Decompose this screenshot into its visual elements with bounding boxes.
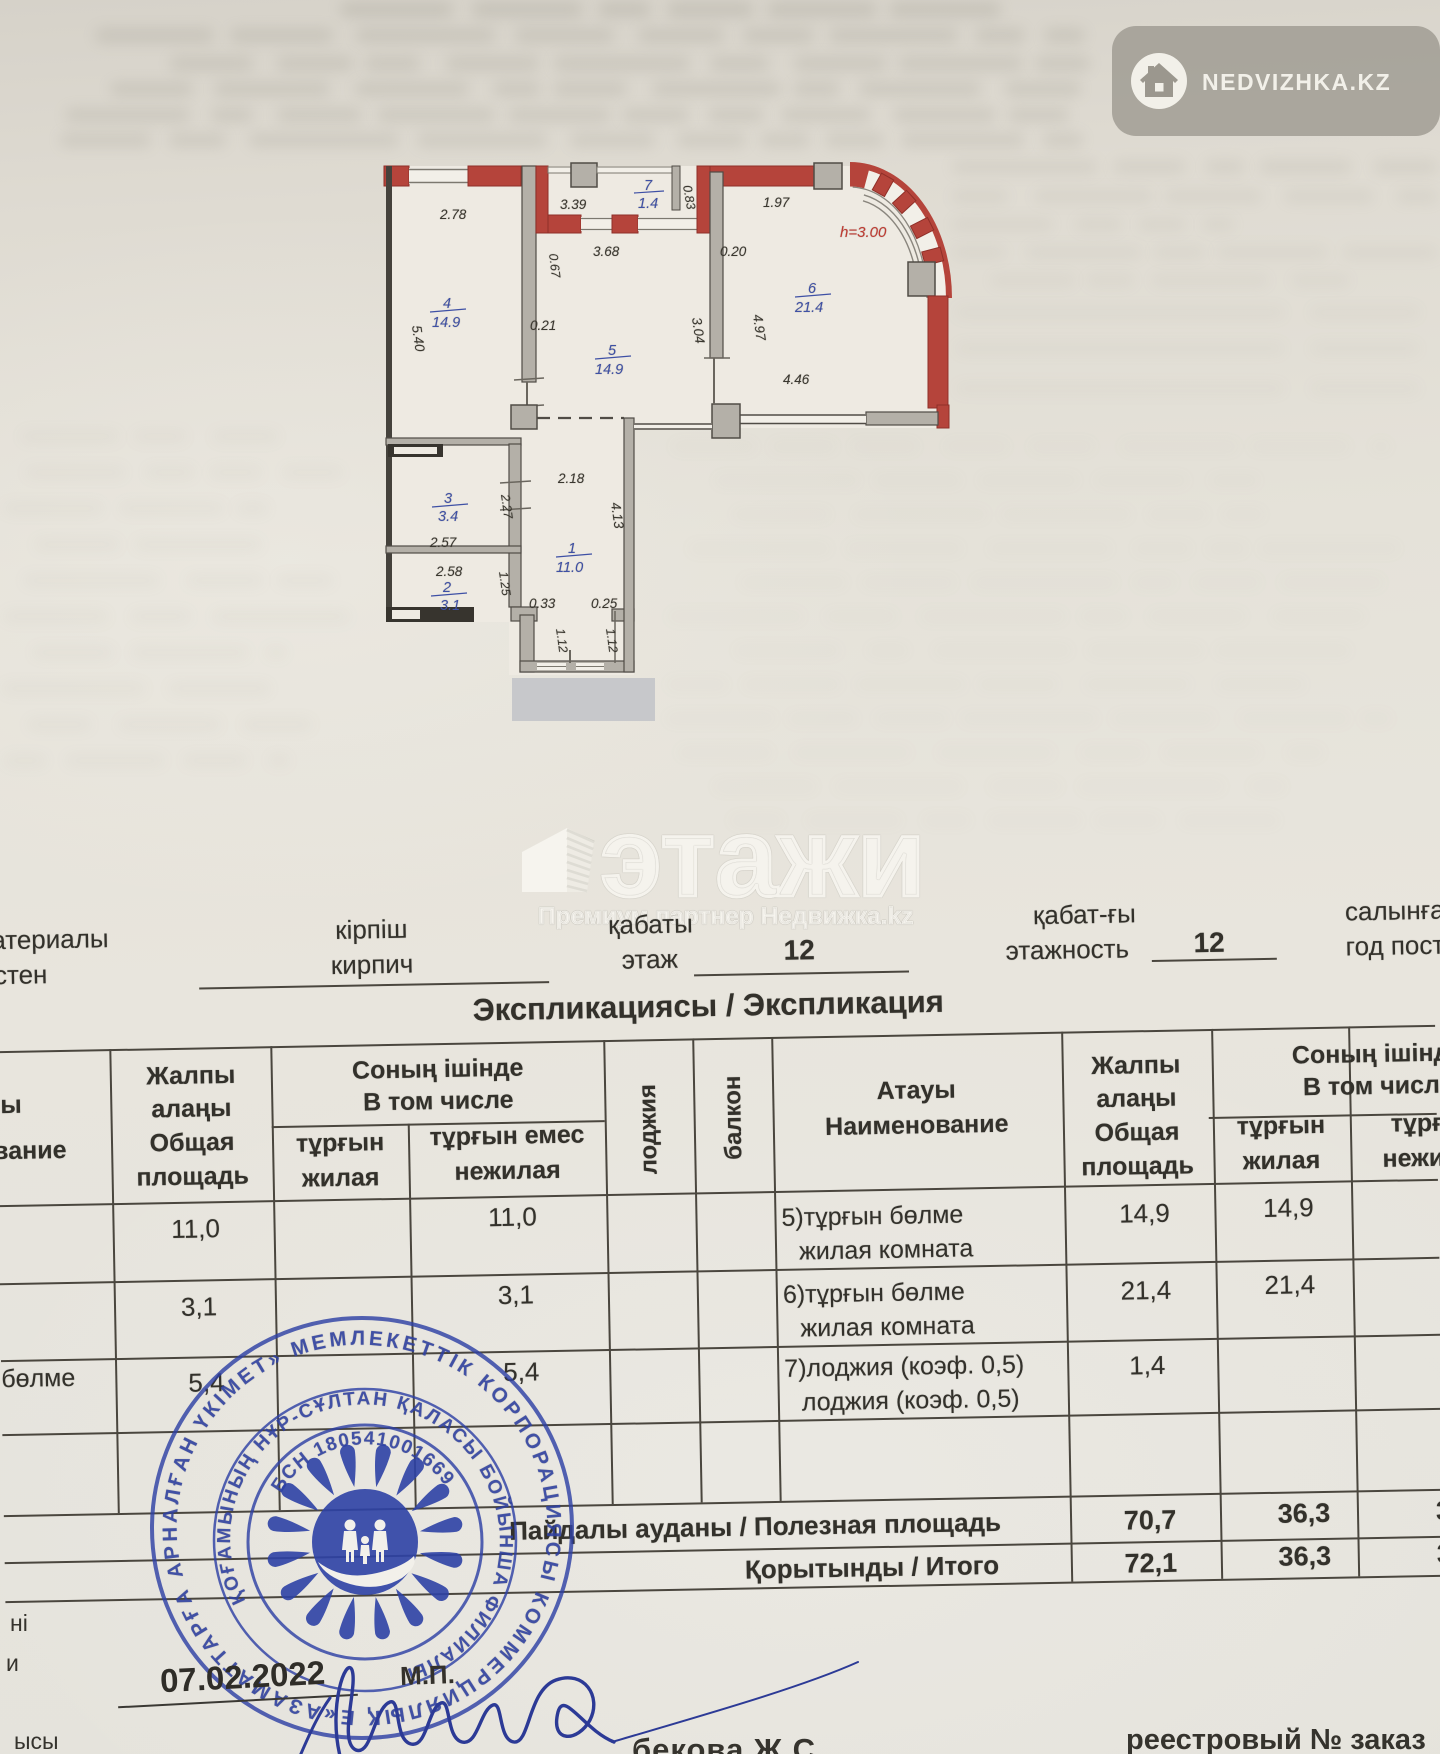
svg-text:БСН 180541001669: БСН 180541001669 — [267, 1428, 458, 1496]
